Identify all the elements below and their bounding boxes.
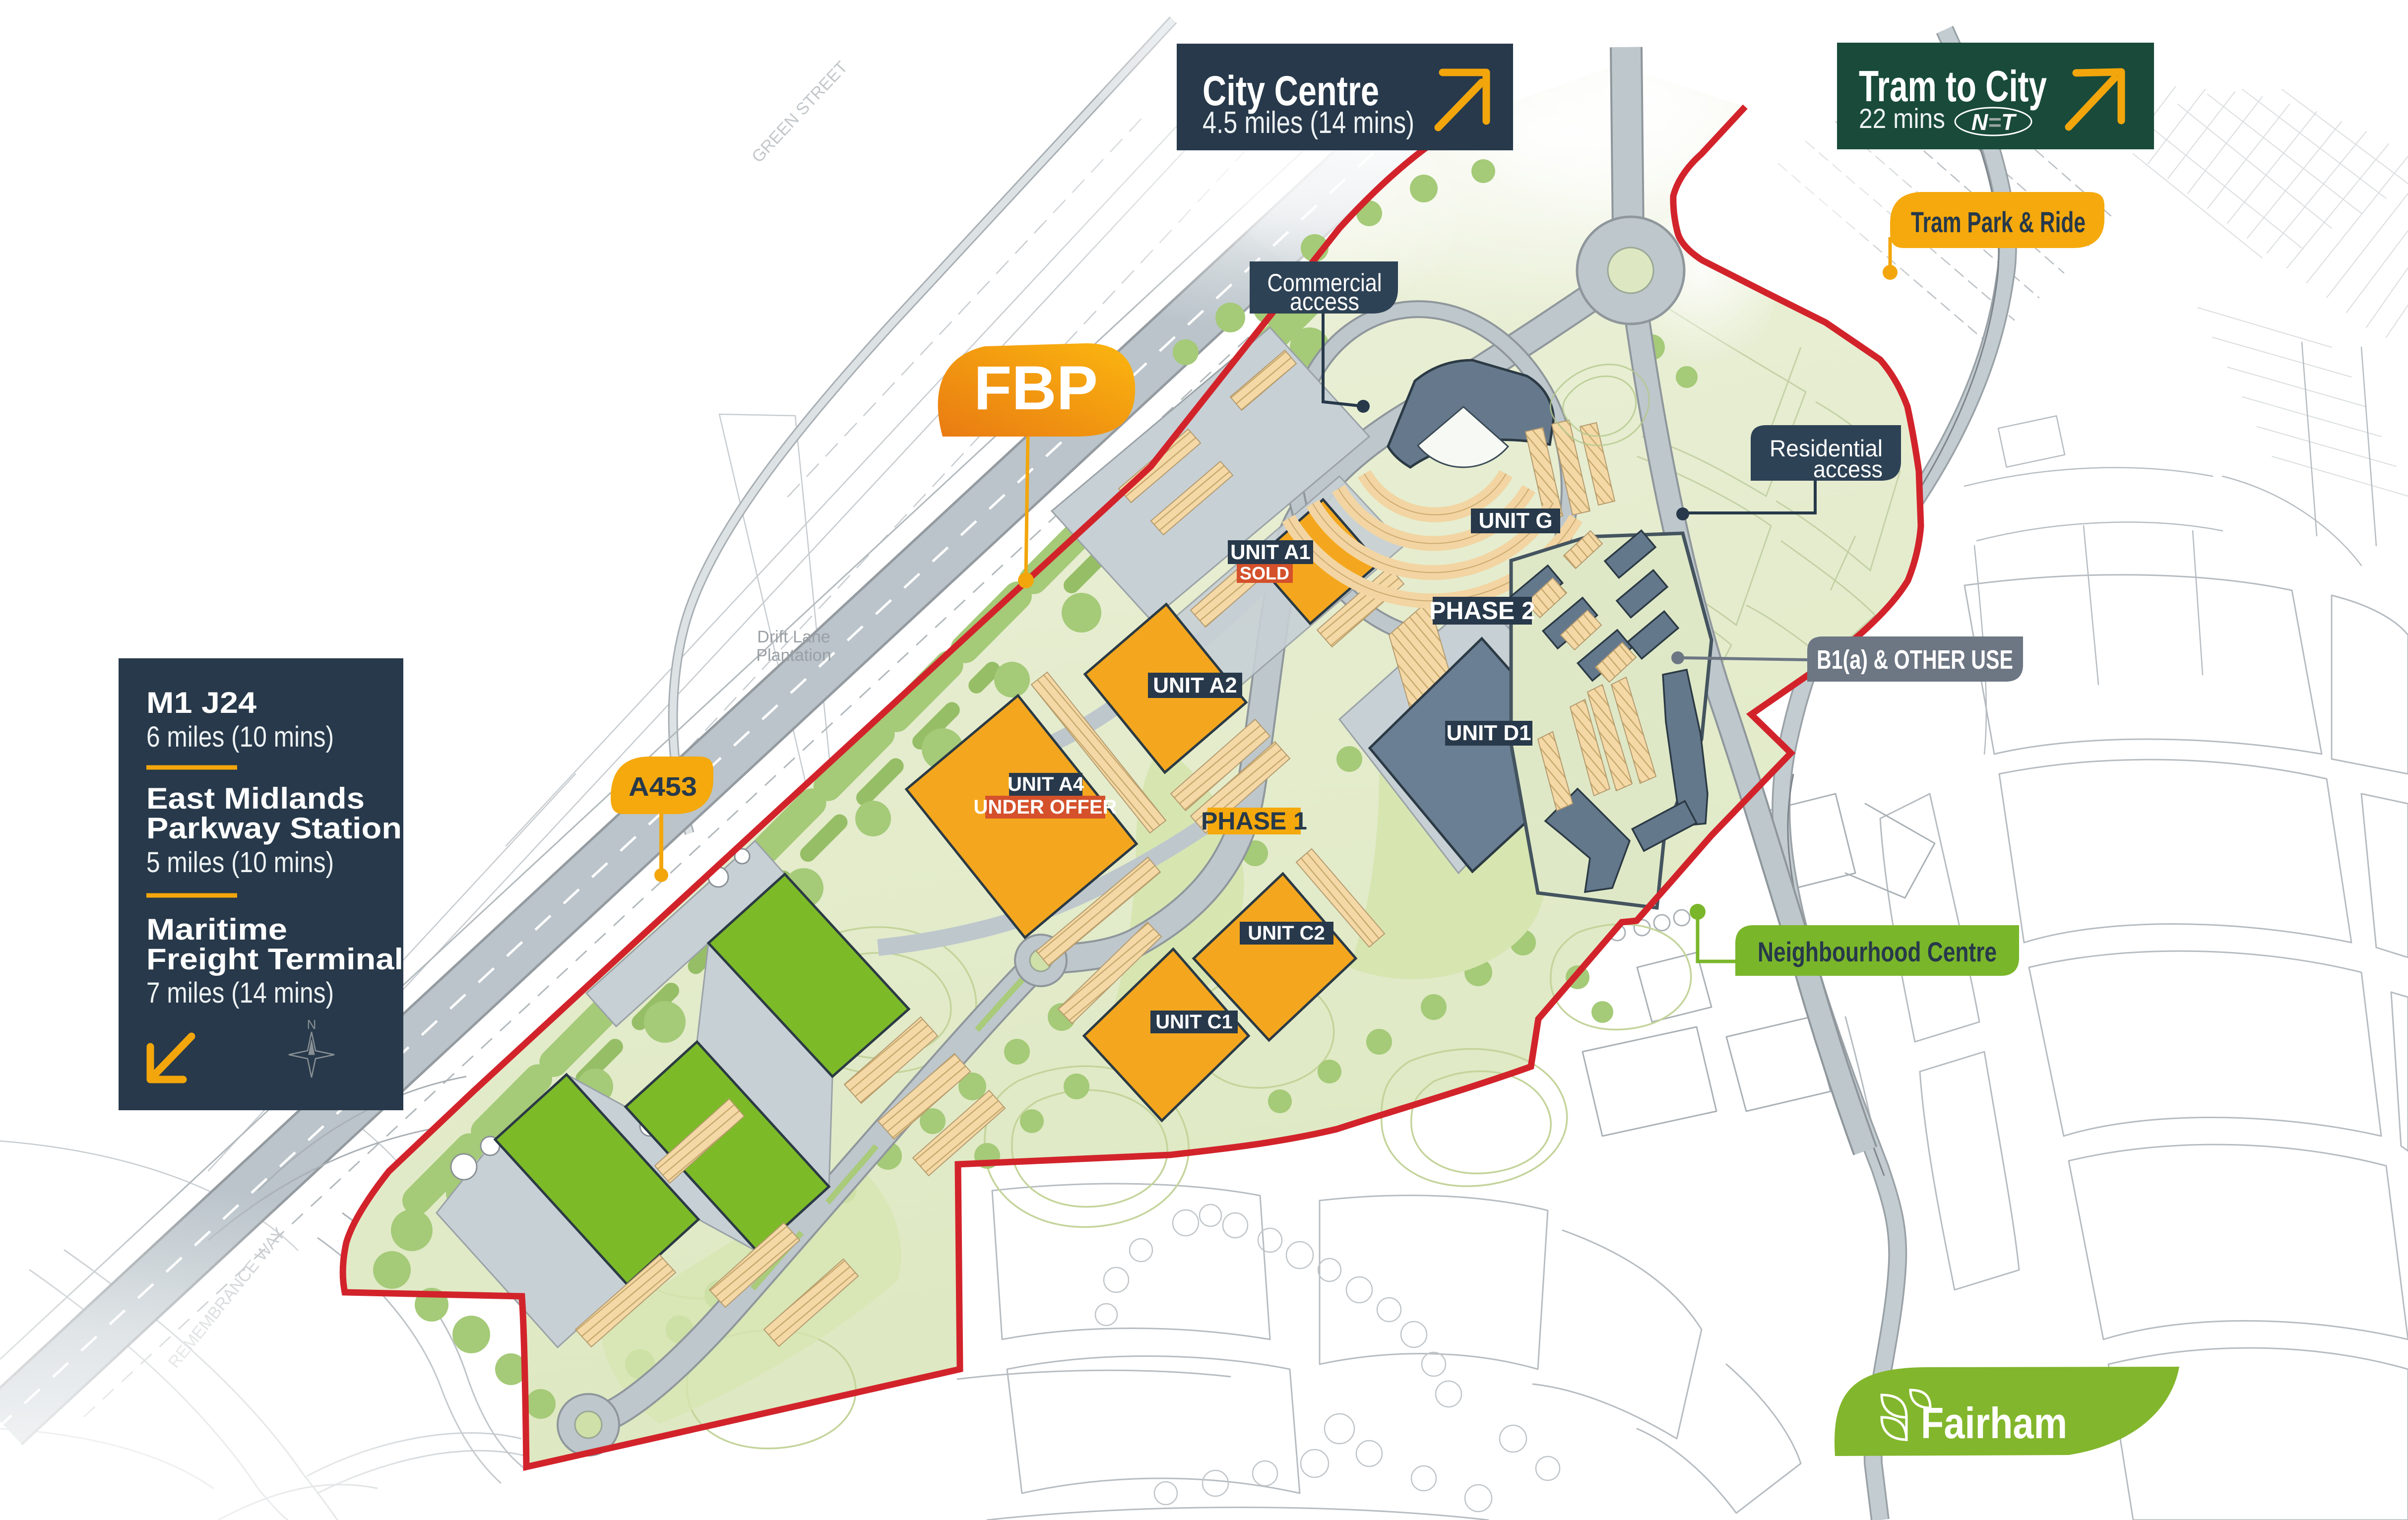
svg-text:Tram Park & Ride: Tram Park & Ride	[1911, 206, 2086, 239]
svg-text:A453: A453	[629, 772, 697, 802]
svg-text:access: access	[1813, 456, 1883, 482]
svg-text:4.5 miles (14 mins): 4.5 miles (14 mins)	[1203, 106, 1414, 140]
svg-text:UNIT A1: UNIT A1	[1230, 540, 1311, 564]
svg-text:Freight Terminal: Freight Terminal	[146, 943, 403, 976]
svg-text:UNIT A2: UNIT A2	[1153, 673, 1237, 697]
svg-text:5 miles (10 mins): 5 miles (10 mins)	[146, 846, 334, 879]
svg-text:UNIT C1: UNIT C1	[1155, 1011, 1233, 1033]
svg-text:UNIT D1: UNIT D1	[1446, 721, 1531, 745]
svg-text:SOLD: SOLD	[1240, 563, 1289, 583]
svg-text:B1(a) & OTHER USE: B1(a) & OTHER USE	[1817, 645, 2013, 675]
svg-text:M1 J24: M1 J24	[146, 686, 257, 719]
svg-text:East Midlands: East Midlands	[146, 782, 365, 815]
svg-text:UNIT C2: UNIT C2	[1248, 922, 1325, 944]
svg-text:Drift Lane: Drift Lane	[757, 628, 830, 646]
svg-text:N: N	[307, 1017, 317, 1032]
svg-text:Fairham: Fairham	[1921, 1398, 2067, 1448]
svg-text:22 mins: 22 mins	[1859, 103, 1945, 134]
svg-text:Parkway Station: Parkway Station	[146, 812, 402, 845]
svg-text:UNIT A4: UNIT A4	[1008, 773, 1084, 795]
svg-text:UNDER OFFER: UNDER OFFER	[974, 796, 1117, 818]
svg-text:FBP: FBP	[974, 354, 1098, 423]
svg-text:PHASE 2: PHASE 2	[1429, 597, 1535, 625]
svg-text:UNIT G: UNIT G	[1478, 508, 1552, 533]
svg-text:6 miles (10 mins): 6 miles (10 mins)	[146, 721, 334, 753]
svg-text:N=T: N=T	[1971, 109, 2017, 135]
svg-text:7 miles (14 mins): 7 miles (14 mins)	[146, 977, 334, 1009]
svg-text:Plantation: Plantation	[756, 646, 831, 665]
svg-text:Maritime: Maritime	[146, 913, 287, 946]
svg-text:Neighbourhood Centre: Neighbourhood Centre	[1758, 936, 1997, 967]
svg-text:access: access	[1290, 288, 1359, 316]
svg-text:PHASE 1: PHASE 1	[1201, 807, 1307, 835]
